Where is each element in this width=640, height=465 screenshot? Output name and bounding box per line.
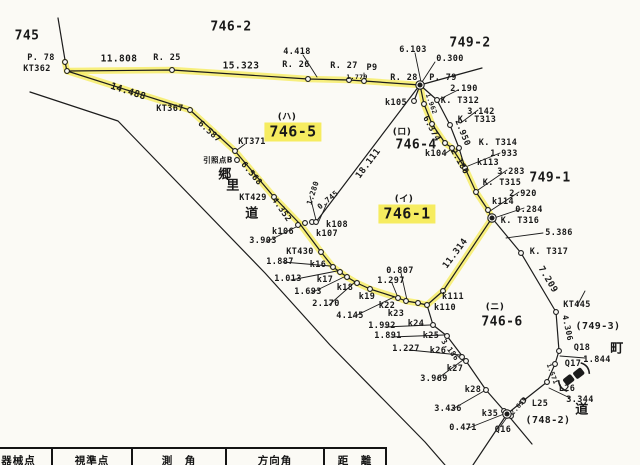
map-label: k104: [425, 150, 447, 159]
map-label: KT362: [23, 65, 51, 74]
survey-map-page: 745746-2P. 78KT36211.808R. 2515.3234.418…: [0, 0, 640, 465]
map-label: K. T312: [441, 97, 480, 106]
map-label: 4.306: [560, 314, 573, 341]
map-label: 2.190: [450, 85, 478, 94]
map-label: 1.227: [392, 345, 420, 354]
map-label: 道: [575, 404, 588, 417]
map-label: P9: [366, 64, 377, 73]
map-label: 15.323: [223, 61, 260, 71]
map-label: 11.314: [442, 237, 470, 270]
map-label: P. 78: [27, 54, 55, 63]
map-label: k28: [465, 386, 482, 395]
map-label: k25: [423, 332, 440, 341]
map-label: KT371: [238, 138, 266, 147]
map-label: L26: [559, 385, 576, 394]
map-label: k114: [492, 198, 514, 207]
map-label: 0.300: [436, 55, 464, 64]
map-label: 3.969: [420, 375, 448, 384]
map-label: 3.903: [249, 237, 277, 246]
table-header-direction-angle: 方向角: [227, 449, 325, 465]
table-header-measured-angle: 測 角: [133, 449, 227, 465]
map-label: 11.808: [101, 54, 138, 64]
table-header-sight-point: 視準点: [53, 449, 133, 465]
map-label: 6.103: [399, 46, 427, 55]
map-label: k113: [477, 159, 499, 168]
map-label: KT429: [239, 194, 267, 203]
map-label: R. 26: [282, 61, 310, 70]
map-label: (748-2): [526, 416, 571, 426]
map-label: k110: [434, 304, 456, 313]
parcel-label-highlighted: 746-1: [379, 206, 434, 223]
map-label: 0.284: [515, 206, 543, 215]
map-label-layer: 745746-2P. 78KT36211.808R. 2515.3234.418…: [0, 0, 640, 465]
map-label: 1.779: [346, 74, 368, 81]
map-label: 4.352: [270, 196, 293, 223]
map-label: 14.488: [109, 82, 147, 102]
map-label: 2.659: [509, 396, 528, 416]
map-label: 道: [245, 208, 258, 221]
map-label: R. 25: [153, 54, 181, 63]
map-label: 1.992: [368, 322, 396, 331]
map-label: 749-1: [529, 172, 570, 185]
map-label: 7.209: [536, 265, 559, 295]
map-label: k19: [359, 293, 376, 302]
map-label: KT445: [563, 301, 591, 310]
map-label: 0.471: [449, 424, 477, 433]
map-label: k27: [447, 365, 464, 374]
map-label: R. 27: [330, 62, 358, 71]
map-label: 1.297: [377, 277, 405, 286]
map-label: 5.386: [545, 229, 573, 238]
map-label: 3.283: [497, 168, 525, 177]
map-label: k111: [442, 293, 464, 302]
map-label: 746-2: [210, 21, 251, 34]
map-label: 749-2: [449, 37, 490, 50]
map-label: k18: [337, 284, 354, 293]
map-label: k107: [316, 230, 338, 239]
map-label: 2.170: [312, 300, 340, 309]
map-label: 1.693: [294, 288, 322, 297]
table-header-distance: 距 離: [325, 449, 387, 465]
map-label: 1.013: [274, 275, 302, 284]
observation-table: 器械点 視準点 測 角 方向角 距 離: [0, 447, 387, 465]
map-label: 746-6: [481, 316, 522, 329]
map-label: Q17: [565, 360, 582, 369]
map-label: K. T314: [479, 139, 518, 148]
map-label: 4.418: [283, 48, 311, 57]
map-label: 里: [226, 180, 239, 193]
map-label: P. 79: [429, 74, 457, 83]
map-label: k35: [482, 410, 499, 419]
map-label: KT367: [156, 105, 184, 114]
map-label: 6.568: [239, 161, 263, 188]
map-label: (ニ): [486, 304, 504, 313]
map-label: k16: [310, 261, 327, 270]
map-label: (ハ): [278, 114, 296, 123]
map-label: (ロ): [393, 129, 411, 138]
map-label: 3.436: [434, 405, 462, 414]
parcel-label-highlighted: 746-5: [265, 124, 320, 141]
map-label: R. 28: [390, 74, 418, 83]
map-label: K. T316: [501, 217, 540, 226]
map-label: k105: [385, 99, 407, 108]
map-label: Q18: [574, 344, 591, 353]
map-label: 745: [15, 30, 40, 43]
map-label: 1.844: [583, 356, 611, 365]
map-label: 1.887: [266, 258, 294, 267]
map-label: 1.891: [374, 332, 402, 341]
map-label: 1.571: [545, 363, 558, 385]
map-label: 引照点B: [203, 156, 233, 164]
map-label: 0.745: [316, 189, 340, 211]
map-label: 0.807: [386, 267, 414, 276]
map-label: 6.587: [196, 120, 222, 145]
map-label: K. T315: [483, 179, 522, 188]
map-label: (749-3): [576, 322, 621, 332]
map-label: 18.111: [355, 147, 383, 180]
map-label: L25: [532, 400, 549, 409]
map-label: Q16: [495, 426, 512, 435]
table-header-instrument-point: 器械点: [0, 449, 53, 465]
map-label: k17: [317, 276, 334, 285]
map-label: k23: [388, 310, 405, 319]
map-label: KT430: [286, 248, 314, 257]
map-label: 4.145: [336, 312, 364, 321]
map-label: 1.962: [424, 93, 437, 115]
map-label: 2.180: [448, 148, 469, 176]
map-label: K. T317: [530, 248, 569, 257]
map-label: (イ): [395, 196, 413, 205]
map-label: 町: [610, 343, 623, 356]
map-label: k24: [408, 320, 425, 329]
